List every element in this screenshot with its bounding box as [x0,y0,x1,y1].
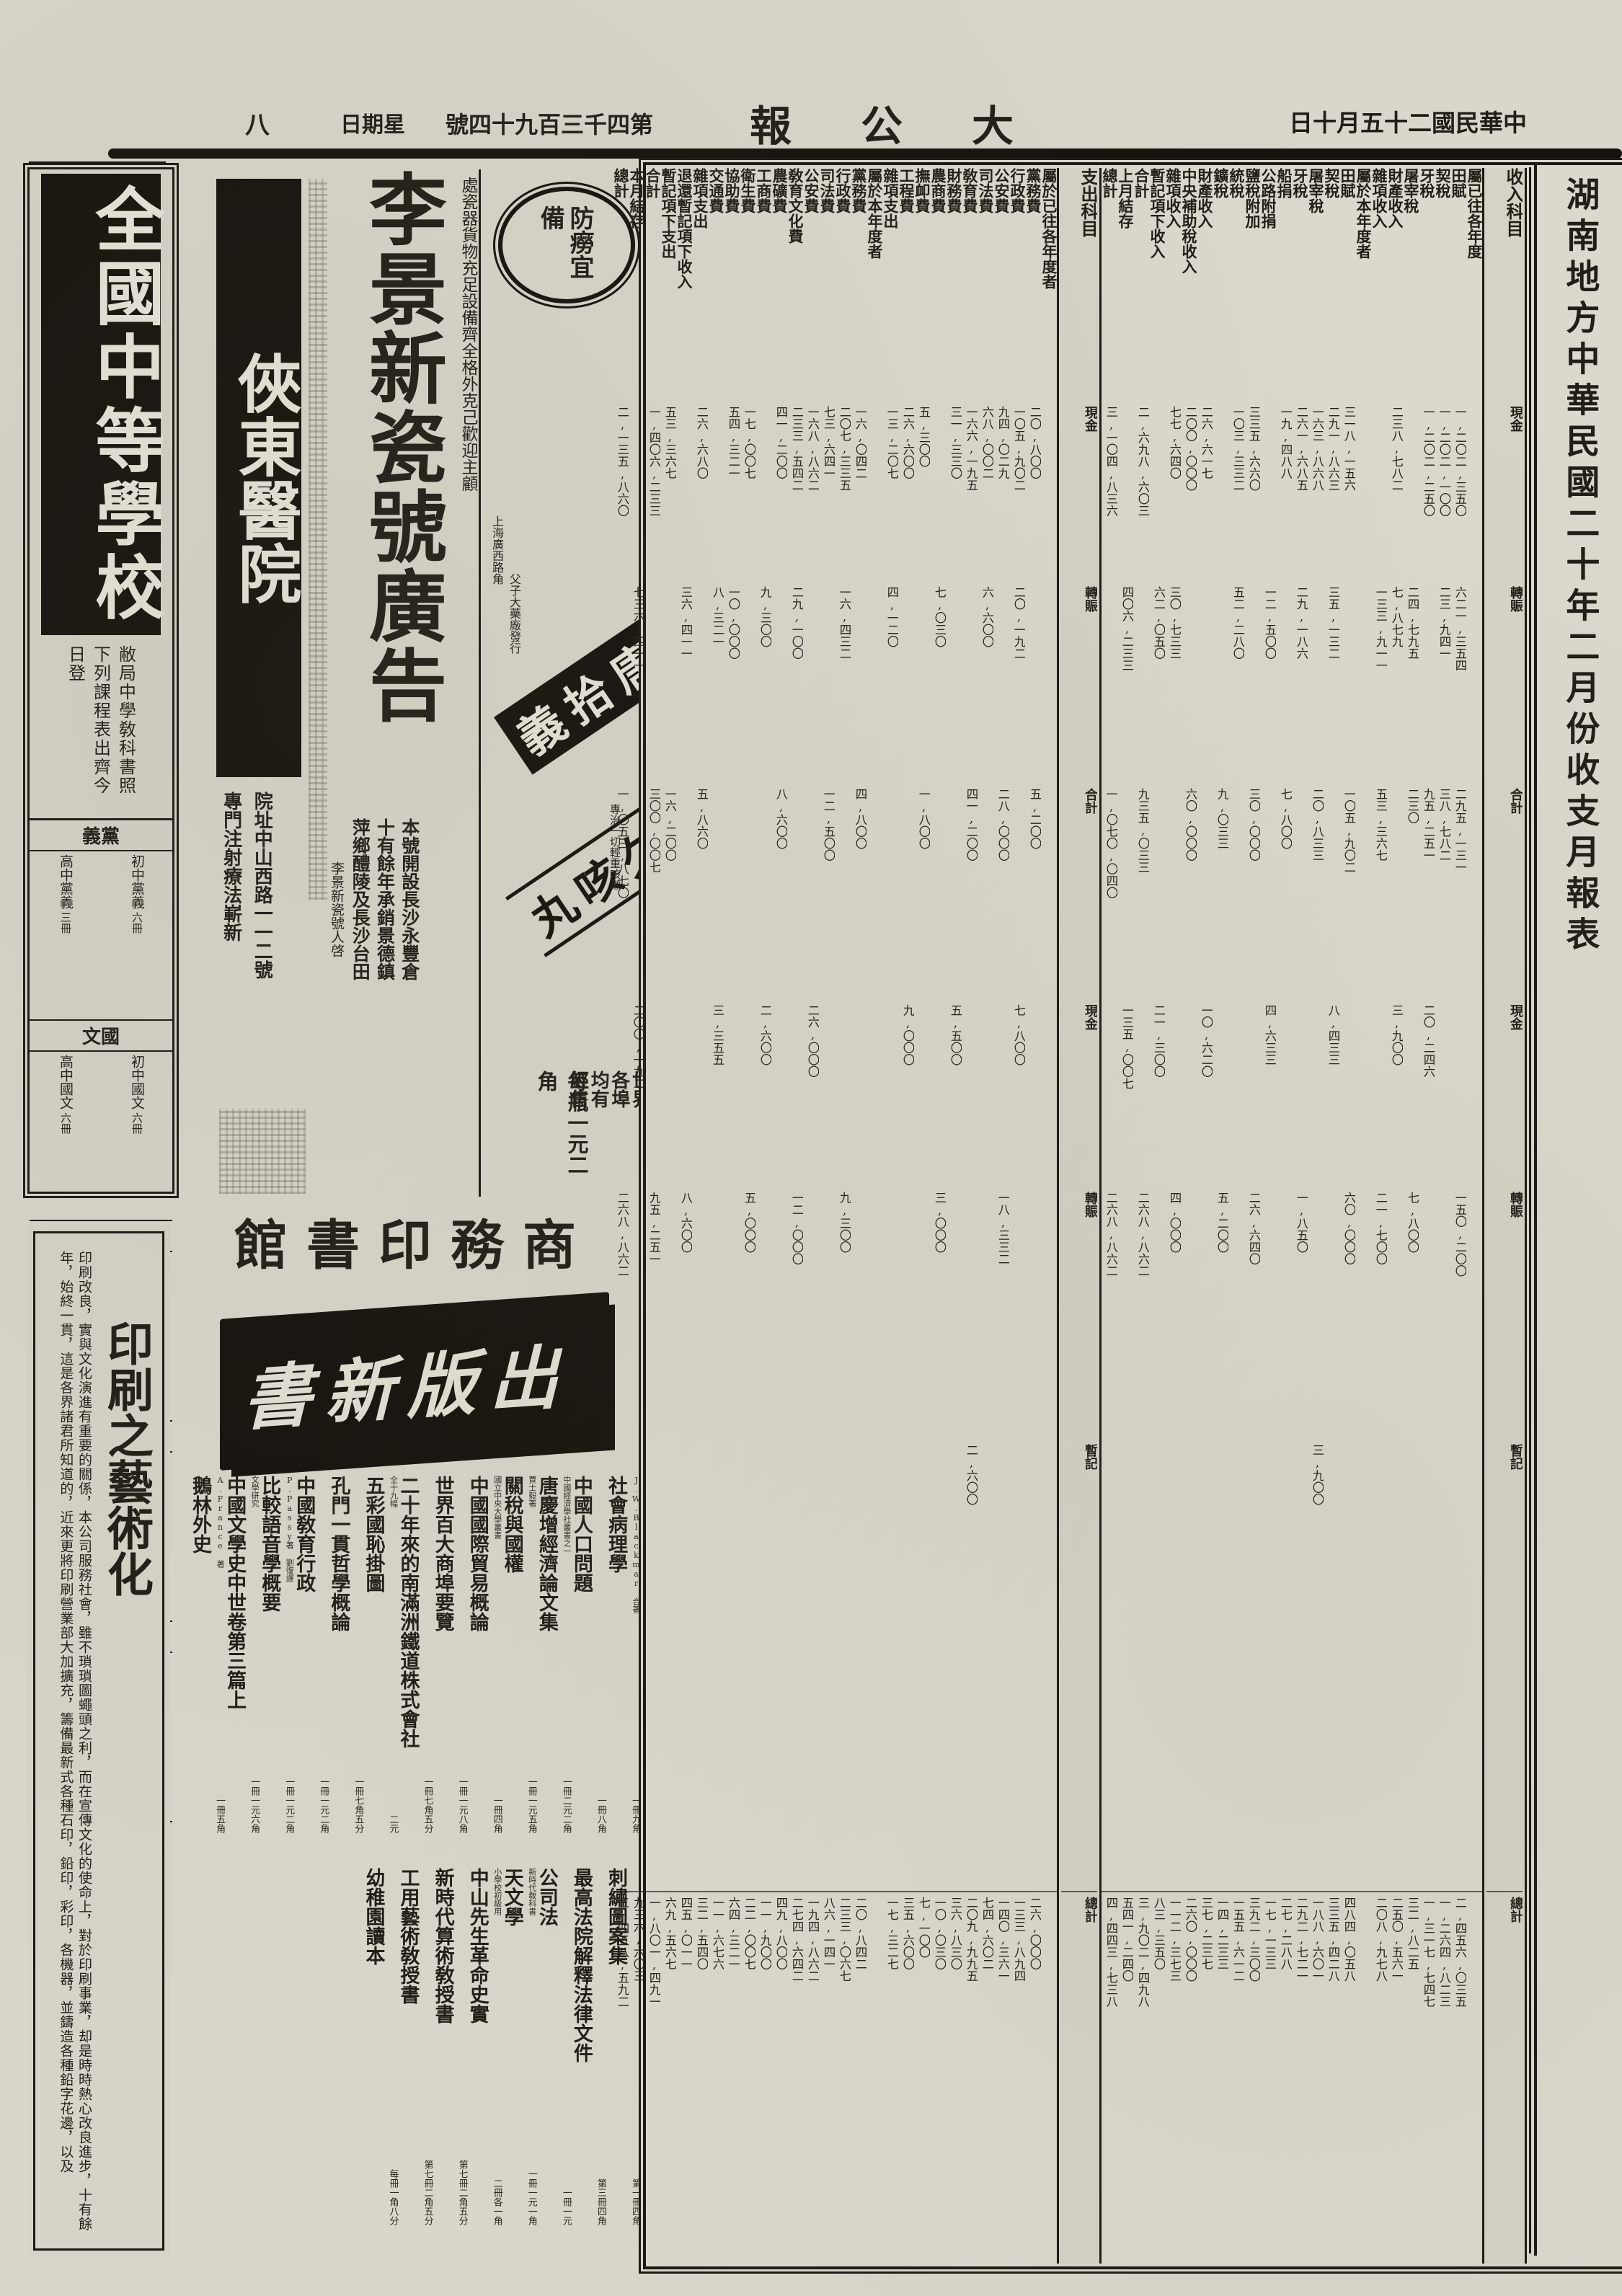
amount-cell: 四,六三三 [1260,1004,1276,1192]
hospital-ad: 俠東醫院 院址中山西路一一二號 專門注射療法嶄新 [216,179,326,1197]
column-header: 財產收入 [1387,168,1403,406]
amount-cell [1276,1444,1292,1891]
amount-cell: 三〇,〇〇〇 [1244,788,1260,1004]
table-account-column: 公安費九四,〇二九二八,〇〇〇一八,三三二一四〇,三六一 [993,168,1009,2264]
amount-cell [1117,1444,1133,1891]
column-header: 撫卹費 [914,168,930,406]
amount-cell: 一二,五〇〇 [819,788,835,1004]
amount-cell: 二九二,七二一 [1292,1891,1308,2253]
book-price: 第七冊二角五分 [418,2160,433,2225]
amount-cell [629,788,644,1004]
column-header: 雜項支出 [692,168,708,406]
course-section: 黨義初中黨義六冊高中黨義三冊 [30,820,172,1021]
amount-cell [882,1444,898,1891]
porcelain-body-line: 本號開設長沙永豐倉 [400,818,419,1193]
course-row: 初中黨義六冊 [130,854,143,1016]
book-note: 賈士毅著 [522,1476,536,1507]
amount-cell [898,1192,914,1444]
amount-cell [1466,1192,1482,1444]
amount-cell [1009,788,1025,1004]
porcelain-ad-body: 本號開設長沙永豐倉 十有餘年承銷景德鎮 萍鄉醴陵及長沙台田 [350,818,419,1193]
row-label-cell: 合計 [1061,788,1097,1004]
row-label-cell: 暫記 [1486,1444,1523,1891]
amount-cell: 一,二〇二,一〇〇 [1435,406,1450,586]
amount-cell: 四九,八〇〇 [771,1891,787,2253]
column-header: 行政費 [835,168,851,406]
amount-cell [1355,1004,1371,1192]
amount-cell: 八,六〇〇 [676,1192,692,1444]
amount-cell [1228,1004,1244,1192]
amount-cell [1387,1444,1403,1891]
amount-cell [898,1444,914,1891]
amount-cell: 二三〇 [1403,788,1419,1004]
paper-title: 大公報 [750,92,1083,153]
book-item: 孔門一貫哲學概論一冊七角五分 [328,1476,363,1833]
amount-cell [740,788,755,1004]
amount-cell: 一七,一三三 [1260,1891,1276,2253]
amount-cell: 六〇,〇〇〇 [1339,1192,1355,1444]
amount-cell: 三六,四一一 [676,586,692,788]
amount-cell [1355,1891,1371,2253]
amount-cell: 七,八〇〇 [1009,1004,1025,1192]
amount-cell [1324,788,1339,1004]
amount-cell [1308,586,1324,788]
amount-cell [819,586,835,788]
amount-cell [692,1004,708,1192]
amount-cell: 二三,九四一 [1435,586,1450,788]
amount-cell [1213,586,1228,788]
amount-cell: 二五〇,五六一 [1387,1891,1403,2253]
table-account-column: 撫卹費五,三〇〇一,八〇〇七,一〇〇 [914,168,930,2264]
amount-cell [1450,1444,1466,1891]
amount-cell [1041,1444,1057,1891]
amount-cell: 三,九〇二,四九八 [1133,1891,1149,2253]
book-item: 中國國際貿易概論國立中央大學叢書一冊四角 [467,1476,502,1833]
amount-cell [1387,1192,1403,1444]
book-note: 國立中央大學叢書 [487,1476,502,1539]
column-header: 收入科目 [1486,168,1523,406]
book-price: 第三冊四角 [591,2178,606,2225]
amount-cell [724,1192,740,1444]
amount-cell: 八六,一四一 [819,1891,835,2253]
amount-cell [1292,788,1308,1004]
porcelain-side-note: 處瓷器貨物充足設備齊全格外克己歡迎主顧 [456,177,477,1114]
amount-cell [708,406,724,586]
row-label-cell: 轉賑 [1061,1192,1097,1444]
amount-cell: 一〇三,三三二 [1228,406,1244,586]
table-account-column: 本月結存七三六,四一一二〇〇,一九二九三六,六〇三 [629,168,644,2264]
amount-cell [1197,788,1213,1004]
amount-cell: 六二一,三五四 [1450,586,1466,788]
amount-cell [1149,406,1165,586]
amount-cell [771,1444,787,1891]
book-price: 一冊一元八角 [453,1777,467,1833]
amount-cell [914,586,930,788]
book-price: 一冊八角 [591,1796,606,1833]
column-header: 總計 [613,168,629,406]
amount-cell [1181,1444,1197,1891]
amount-cell: 一八八,六〇一 [1308,1891,1324,2253]
amount-cell: 七,八七九 [1387,586,1403,788]
amount-cell [898,586,914,788]
amount-cell [993,586,1009,788]
amount-cell [1308,1004,1324,1192]
amount-cell [1466,1004,1482,1192]
amount-cell: 二六,六八〇 [692,406,708,586]
amount-cell [1025,1444,1041,1891]
book-note: 全十九幅 [383,1476,397,1507]
amount-cell: 九,〇〇〇 [898,1004,914,1192]
amount-cell: 二〇,八三三 [1308,788,1324,1004]
amount-cell [1324,1192,1339,1444]
table-account-column: 雜項收入一三三,九一一五三,三六七二一,七〇〇二〇八,九七八 [1371,168,1387,2264]
amount-cell [851,1444,867,1891]
amount-cell: 二一,七〇〇 [1371,1192,1387,1444]
amount-cell: 二,六〇〇 [962,1444,978,1891]
book-title: 中國國際貿易概論 [467,1476,487,1814]
amount-cell [1244,1004,1260,1192]
amount-cell [867,1891,882,2253]
table-account-column: 牙稅二六一,六八五二九,一八六一,八五〇二九二,七二一 [1292,168,1308,2264]
book-price: 一冊五角 [210,1796,224,1833]
amount-cell [613,1004,629,1192]
amount-cell [867,586,882,788]
book-item: 工用藝術敎授書第七冊二角五分 [397,1868,432,2225]
amount-cell: 九四,〇二九 [993,406,1009,586]
amount-cell [724,788,740,1004]
amount-cell [1466,1891,1482,2253]
amount-cell [644,1444,660,1891]
table-account-column: 農礦費四一,二〇〇八,六〇〇四九,八〇〇 [771,168,787,2264]
table-account-column: 屬於已往各年度者 [1041,168,1057,2264]
amount-cell: 五二,二八〇 [1228,586,1244,788]
table-account-column: 鹽稅附加三三五,六六〇三〇,〇〇〇二六,六四〇三九二,三〇〇 [1244,168,1260,2264]
amount-cell [1371,406,1387,586]
book-title: 中國人口問題 [571,1476,591,1814]
book-title: 比較語音學概要 [259,1476,279,1814]
amount-cell [1466,586,1482,788]
textbook-ad-announcement: 敝局中學敎科書照下列課程表出齊今日登 [63,645,139,811]
amount-cell: 一,八〇一,四九一 [644,1891,660,2253]
amount-cell [771,1192,787,1444]
book-price: 二元 [383,1814,397,1833]
column-header: 合計 [1133,168,1149,406]
amount-cell [1260,788,1276,1004]
amount-cell: 五,二〇〇 [1025,788,1041,1004]
row-label-cell: 轉賑 [1486,1192,1523,1444]
amount-cell: 二六,〇〇〇 [1025,1891,1041,2253]
book-item: 比較語音學概要P.Passy著 劉復譯一冊一元二角 [259,1476,293,1833]
table-account-column: 鑛稅九,〇三三五,二〇〇一四,二三三 [1213,168,1228,2264]
amount-cell: 一一,九〇〇 [755,1891,771,2253]
amount-cell: 二六,六一七 [1197,406,1213,586]
amount-cell [1102,1004,1117,1192]
amount-cell [676,788,692,1004]
table-account-column: 船捐一九,四八八七,八〇〇二七,二八八 [1276,168,1292,2264]
book-title: 工用藝術敎授書 [397,1868,417,2207]
amount-cell [1133,1444,1149,1891]
amount-cell [771,586,787,788]
amount-cell [708,788,724,1004]
book-price: 一冊一元二角 [314,1777,328,1833]
amount-cell [1339,1004,1355,1192]
amount-cell [1466,788,1482,1004]
amount-cell [819,1444,835,1891]
amount-cell [1181,1004,1197,1192]
column-header: 田賦 [1450,168,1466,406]
amount-cell [882,1004,898,1192]
table-account-column: 財務費三一,三三〇五,五〇〇三六,八三〇 [946,168,962,2264]
amount-cell: 九,三〇〇 [755,586,771,788]
table-account-column: 中央補助稅收入二〇〇,〇〇〇六〇,〇〇〇二六〇,〇〇〇 [1181,168,1197,2264]
table-account-column: 總計三,一〇四,八三六一,〇七〇,〇四〇二六八,八六二四,四四三,七三八 [1102,168,1117,2264]
issue-number: 第四千三百九十四號 [446,107,653,140]
amount-cell [946,586,962,788]
amount-cell: 四,〇〇〇 [1165,1192,1181,1444]
book-price: 一冊四角 [487,1796,502,1833]
book-item: 中山先生革命史實小學校初級用二冊各一角 [467,1868,502,2225]
column-header: 屬已往各年度 [1466,168,1482,406]
amount-cell: 二九,一〇〇 [787,586,803,788]
amount-cell: 六,六〇〇 [978,586,993,788]
book-item: 中國文學史中世卷第三篇上文學研究一冊一元六角 [224,1476,259,1833]
row-label-cell: 現金 [1061,1004,1097,1192]
row-label-cell: 轉賑 [1061,586,1097,788]
book-item: 天文學新時代敎科書一冊一元一角 [502,1868,536,2225]
amount-cell: 三〇〇,〇〇七 [644,788,660,1004]
amount-cell [1435,1004,1450,1192]
table-account-column: 財產收入二三八,七八二七,八七九三,九〇〇二五〇,五六一 [1387,168,1403,2264]
amount-cell [1403,406,1419,586]
amount-cell: 三一,三三〇 [946,406,962,586]
book-title: 公司法 [536,1868,557,2207]
amount-cell [676,406,692,586]
amount-cell [1371,1444,1387,1891]
table-account-column: 屬於本年度者 [1355,168,1371,2264]
table-account-column: 公安費一六八,八六二二六,〇〇〇一九四,八六二 [803,168,819,2264]
amount-cell [867,406,882,586]
amount-cell: 二〇,八四二 [851,1891,867,2253]
amount-cell: 六四,三二一 [724,1891,740,2253]
printing-article: 印刷之藝術化 印刷改良，實與文化演進有重要的關係，本公司服務社會，雖不瑣瑣圖蠅頭… [27,1225,170,2256]
amount-cell [1355,586,1371,788]
amount-cell [1197,586,1213,788]
column-header: 行政費 [1009,168,1025,406]
book-title: 孔門一貫哲學概論 [328,1476,348,1814]
amount-cell [1165,788,1181,1004]
row-label-cell: 轉賑 [1486,586,1523,788]
amount-cell [708,1444,724,1891]
book-title: 中山先生革命史實 [467,1868,487,2207]
amount-cell [629,406,644,586]
row-label-cell: 總計 [1486,1891,1523,2253]
book-item: 幼稚園讀本每冊一角八分 [363,1868,397,2225]
amount-cell [1025,1192,1041,1444]
article-frame: 印刷之藝術化 印刷改良，實與文化演進有重要的關係，本公司服務社會，雖不瑣瑣圖蠅頭… [33,1231,164,2251]
row-label-cell: 合計 [1486,788,1523,1004]
table-account-column: 敎育文化費二三三,五四二二九,一〇〇一二,〇〇〇二七四,六四二 [787,168,803,2264]
table-account-column: 雜項收入七七,六四〇三〇,七三三四,〇〇〇一一二,三七三 [1165,168,1181,2264]
book-note: A.France 著 [210,1476,224,1568]
table-account-column: 協助費五四,三二一一〇,〇〇〇六四,三二一 [724,168,740,2264]
amount-cell [993,1444,1009,1891]
table-account-column: 交通費八,三二一三,三五五一一,六七六 [708,168,724,2264]
amount-cell: 三,四五八,五九二 [613,1891,629,2253]
amount-cell [1228,1444,1244,1891]
amount-cell [660,586,676,788]
table-title: 湖南地方中華民國二十年二月份收支月報表 [1556,177,1603,957]
book-price: 一冊七角五分 [418,1777,433,1833]
amount-cell: 二九,一八六 [1292,586,1308,788]
column-header: 契稅 [1324,168,1339,406]
illegible-text-block [219,1109,306,1194]
masthead-date: 中華民國二十五月十日 [1289,104,1527,138]
table-label-column: 支出科目現金轉賑合計現金轉賑暫記總計 [1057,168,1102,2264]
amount-cell [708,1192,724,1444]
amount-cell [803,1444,819,1891]
amount-cell: 六二,〇五〇 [1149,586,1165,788]
amount-cell [1228,1192,1244,1444]
amount-cell [962,1004,978,1192]
amount-cell: 五,五〇〇 [946,1004,962,1192]
amount-cell [1387,788,1403,1004]
amount-cell: 七,八〇〇 [1403,1192,1419,1444]
amount-cell: 六〇,〇〇〇 [1181,788,1197,1004]
amount-cell: 二六,六〇〇 [898,406,914,586]
amount-cell [724,1444,740,1891]
amount-cell: 八,六〇〇 [771,788,787,1004]
table-account-column: 合計二,六九八,六〇三九三五,〇三三二六八,八六二三,九〇二,四九八 [1133,168,1149,2264]
amount-cell: 二四,七九五 [1403,586,1419,788]
amount-cell [1025,1004,1041,1192]
amount-cell [1260,1444,1276,1891]
column-header: 農商費 [930,168,946,406]
amount-cell: 五四一,二四〇 [1117,1891,1133,2253]
amount-cell: 七,〇三〇 [930,586,946,788]
amount-cell [1133,1004,1149,1192]
amount-cell: 四一,二〇〇 [962,788,978,1004]
book-note: 中國經濟學社叢書之一 [557,1476,571,1555]
book-item: 最高法院解釋法律文件第三冊四角 [571,1868,606,2225]
porcelain-body-line: 十有餘年承銷景德鎮 [375,818,394,1193]
amount-cell [930,788,946,1004]
column-header: 總計 [1102,168,1117,406]
amount-cell: 一,八〇〇 [914,788,930,1004]
amount-cell [1041,788,1057,1004]
book-note: 文學研究 [244,1476,259,1507]
amount-cell [1213,1444,1228,1891]
amount-cell [1419,1444,1435,1891]
amount-cell: 五,二〇〇 [1213,1192,1228,1444]
column-header: 屠宰稅 [1403,168,1419,406]
column-header: 財產收入 [1197,168,1213,406]
amount-cell: 八,四三三 [1324,1004,1339,1192]
amount-cell: 七,八〇〇 [1276,788,1292,1004]
banner-text: 出版新書 [238,1318,592,1443]
amount-cell: 二三三,五四二 [787,406,803,586]
amount-cell: 二六〇,〇〇〇 [1181,1891,1197,2253]
amount-cell [867,1444,882,1891]
amount-cell: 九三六,六〇三 [629,1891,644,2253]
column-header: 牙稅 [1292,168,1308,406]
amount-cell: 一,二〇二,二五〇 [1419,406,1435,586]
amount-cell [1419,1192,1435,1444]
column-header: 協助費 [724,168,740,406]
amount-cell [755,1444,771,1891]
amount-cell [946,1192,962,1444]
amount-cell [724,1004,740,1192]
amount-cell: 一九四,八六二 [803,1891,819,2253]
amount-cell [1009,1444,1025,1891]
row-label-cell: 現金 [1061,406,1097,586]
book-item: 關稅與國權賈士毅著一冊一元五角 [502,1476,536,1833]
amount-cell [1181,586,1197,788]
amount-cell: 一六六,一九五 [962,406,978,586]
amount-cell [692,586,708,788]
amount-cell [1041,1004,1057,1192]
book-list: 社會病理學J.W.Blackmar 合著一冊九角中國人口問題一冊八角唐慶增經濟論… [189,1476,640,2225]
porcelain-ad: 處瓷器貨物充足設備齊全格外克己歡迎主顧 李景新瓷號廣告 本號開設長沙永豐倉 十有… [326,169,479,1197]
amount-cell: 九,三〇〇 [835,1192,851,1444]
course-section-name: 國文 [30,1021,172,1052]
column-header: 工商費 [755,168,771,406]
amount-cell [644,586,660,788]
article-title: 印刷之藝術化 [100,1320,152,1597]
book-title: 鵝林外史 [190,1476,210,1814]
article-body: 印刷改良，實與文化演進有重要的關係，本公司服務社會，雖不瑣瑣圖蠅頭之利，而在宣傳… [32,1251,93,2231]
book-item: 新時代算術敎授書第七冊二角五分 [433,1868,467,2225]
porcelain-body-line: 萍鄉醴陵及長沙台田 [350,818,369,1193]
amount-cell: 三五,六〇〇 [898,1891,914,2253]
amount-cell [851,1004,867,1192]
weekday: 星期日 [340,107,405,138]
amount-cell: 一四,二三三 [1213,1891,1228,2253]
column-header: 田賦 [1339,168,1355,406]
amount-cell: 九五,二五一 [1419,788,1435,1004]
hospital-address: 院址中山西路一一二號 [252,792,272,1094]
amount-cell [978,1444,993,1891]
column-header: 財務費 [946,168,962,406]
amount-cell [1133,586,1149,788]
amount-cell [1419,586,1435,788]
amount-cell [740,586,755,788]
amount-cell [1228,788,1244,1004]
amount-cell [692,1444,708,1891]
table-account-column: 雜項支出二六,六八〇五,八六〇三二,五四〇 [692,168,708,2264]
amount-cell [946,1444,962,1891]
amount-cell [1292,1004,1308,1192]
amount-cell [1213,406,1228,586]
amount-cell [993,1004,1009,1192]
table-account-column: 上月結存四〇六,二三三一三五,〇〇七五四一,二四〇 [1117,168,1133,2264]
amount-cell: 七三,六四一 [819,406,835,586]
amount-cell: 二〇八,九七八 [1371,1891,1387,2253]
column-header: 司法費 [978,168,993,406]
course-row: 高中國文六冊 [58,1055,72,1217]
amount-cell: 一六八,八六二 [803,406,819,586]
amount-cell [1149,1444,1165,1891]
amount-cell [629,1192,644,1444]
amount-cell: 四八四,〇五八 [1339,1891,1355,2253]
amount-cell [1355,1192,1371,1444]
amount-cell: 一三三,九一一 [1371,586,1387,788]
table-account-column: 工商費九,三〇〇二,六〇〇一一,九〇〇 [755,168,771,2264]
book-title: 中國敎育行政 [293,1476,314,1814]
amount-cell: 一,二〇二,三五〇 [1450,406,1466,586]
amount-cell: 六八,〇〇二 [978,406,993,586]
amount-cell [803,586,819,788]
table-account-column: 黨務費一六,〇四二四,八〇〇二〇,八四二 [851,168,867,2264]
